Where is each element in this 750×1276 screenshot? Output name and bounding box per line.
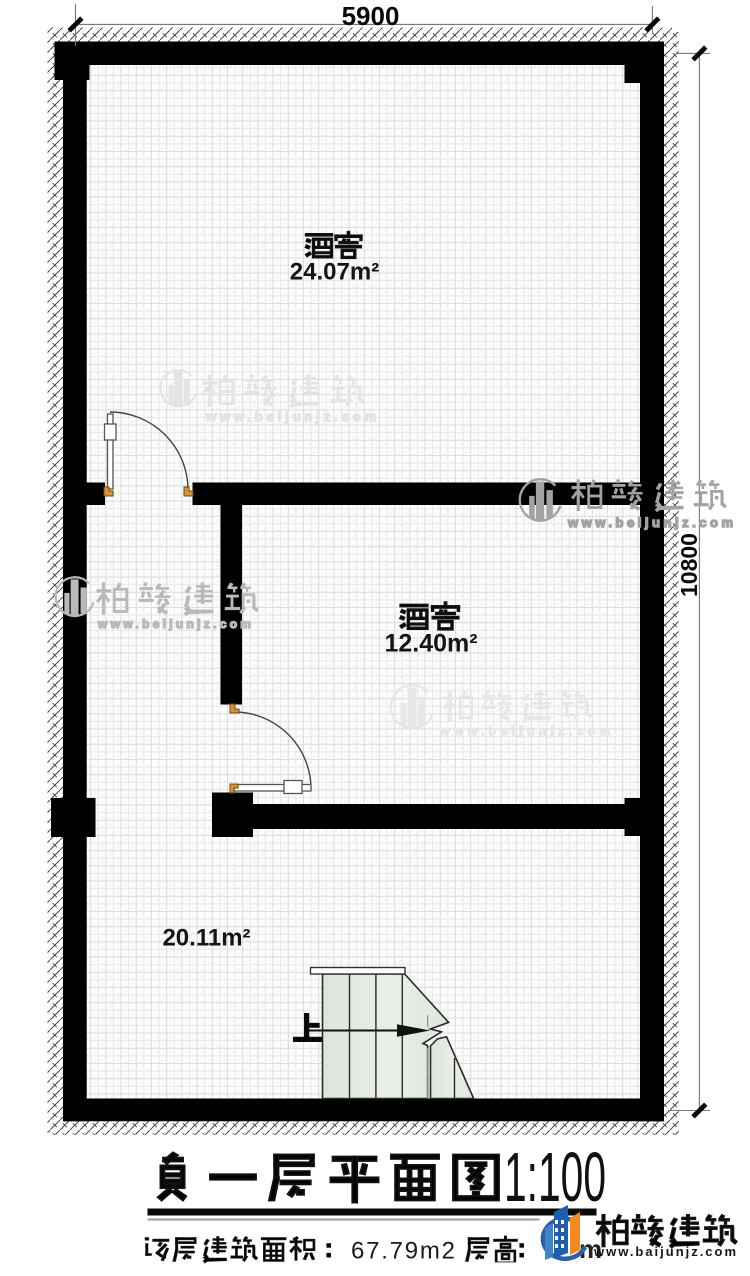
- svg-text:67.79m2: 67.79m2: [351, 1238, 455, 1265]
- svg-text:12.40m²: 12.40m²: [384, 630, 477, 658]
- svg-text:10800: 10800: [676, 533, 702, 597]
- svg-text:20.11m²: 20.11m²: [162, 925, 250, 952]
- svg-text:www.baijunjz.com: www.baijunjz.com: [593, 1244, 736, 1259]
- svg-text:24.07m²: 24.07m²: [290, 259, 379, 286]
- svg-text:5900: 5900: [342, 1, 400, 31]
- svg-text:1:100: 1:100: [504, 1138, 606, 1216]
